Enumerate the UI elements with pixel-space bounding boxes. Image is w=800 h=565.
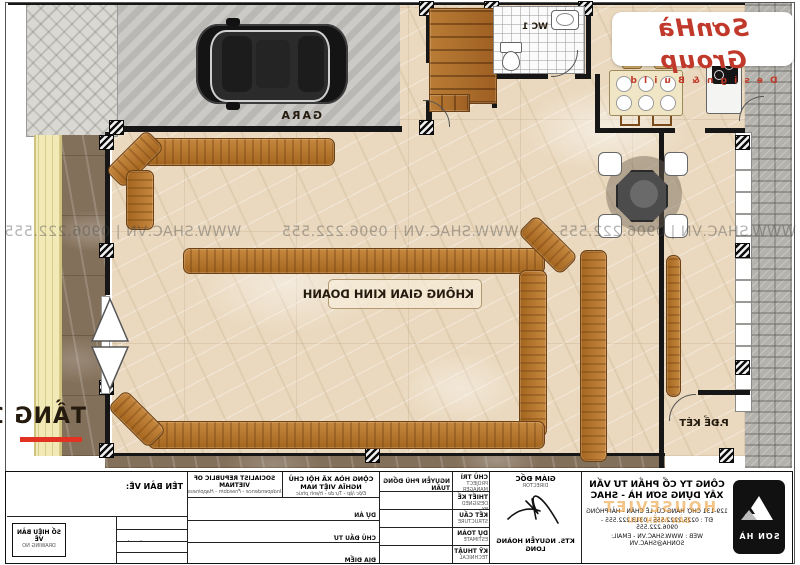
staff-label: KẾT CẤU (454, 512, 488, 519)
column-icon (735, 360, 750, 375)
column-icon (99, 443, 114, 458)
garage-interior-wall (112, 126, 402, 132)
column-icon (735, 243, 750, 258)
staff-label: DỰ TOÁN (454, 530, 488, 537)
project-cell: CỘNG HÒA XÃ HỘI CHỦ NGHĨA VIỆT NAM Độc l… (188, 472, 380, 563)
free-site-watermark-1: HOUSEVIET (584, 498, 734, 516)
staff-row-label: THIẾT KẾ DESIGNED BY (453, 491, 489, 509)
column-icon (99, 243, 114, 258)
republic-vn-1: CỘNG HÒA XÃ HỘI CHỦ NGHĨA VIỆT NAM (283, 475, 379, 491)
project-label: DỰ ÁN (354, 512, 376, 519)
drawing-cell: TÊN BẢN VẼ: HẠNG MỤC GIAI ĐOẠN THIẾT KẾ … (8, 472, 188, 563)
staff-label: THIẾT KẾ (454, 494, 488, 501)
display-counter-top (143, 138, 335, 166)
column-icon (735, 135, 750, 150)
director-title: GIÁM ĐỐC (490, 475, 581, 483)
republic-vn-2: Độc lập - Tự do - Hạnh phúc (283, 491, 379, 497)
dining-chair-icon (620, 116, 640, 126)
display-counter-middle (183, 248, 545, 274)
staff-value (379, 527, 452, 545)
wc-toilet-bowl-icon (502, 51, 520, 71)
title-block: SƠN HÀ CÔNG TY CỔ PHẦN TƯ VẤN XÂY DỰNG S… (5, 471, 793, 564)
wall-cabinet (666, 255, 681, 397)
drawing-number-box: SỐ HIỆU BẢN VẼ DRAWING NO (12, 523, 66, 557)
sidewalk-paving (26, 3, 118, 137)
watermark-row: WWW.SHAC.VN | 0906.222.555 WWW.SHAC.VN |… (0, 224, 800, 240)
car-roof-panel (256, 40, 290, 88)
drawing-rows: HẠNG MỤC GIAI ĐOẠN THIẾT KẾ TỶ LỆ NGÀY H… (117, 516, 187, 563)
brand-logo-card: SơnHà Group D e s i g n & B u i l d (612, 12, 794, 66)
company-name-1: CÔNG TY CỔ PHẦN TƯ VẤN (584, 480, 730, 491)
wc-sink-basin-icon (556, 13, 574, 26)
stair-lower-flight (429, 8, 497, 104)
drawing-name-label: TÊN BẢN VẼ: (126, 482, 183, 491)
floor-title-underline (20, 437, 82, 442)
car-icon (196, 24, 348, 104)
republic-en: SOCIALIST REPUBLIC OF VIETNAM Independen… (187, 472, 283, 498)
car-rear-window (298, 36, 324, 92)
facade-wall-a (105, 132, 110, 295)
car-mirror-icon (226, 18, 240, 26)
sonha-logo-text: SƠN HÀ (733, 532, 785, 541)
wc-front-wall-b (492, 74, 548, 79)
floor-plan-sheet: WC 1 (0, 0, 800, 565)
project-row: CHỦ ĐẦU TƯOWNER (187, 520, 379, 542)
floor-title: TẦNG 1 (0, 404, 86, 429)
staff-label: KỸ THUẬT (454, 548, 488, 555)
project-row: DỰ ÁNPROJECT (187, 498, 379, 520)
column-icon (99, 135, 114, 150)
staff-value: NGUYỄN PHÙ ĐỔNG TUẤN (379, 472, 452, 491)
watermark-text: WWW.SHAC.VN | 0906.222.555 (4, 224, 241, 240)
republic-vn: CỘNG HÒA XÃ HỘI CHỦ NGHĨA VIỆT NAM Độc l… (283, 472, 379, 498)
wc-label: WC 1 (522, 22, 548, 32)
business-space-label: KHÔNG GIAN KINH DOANH (303, 287, 474, 301)
free-site-watermark-2: BẢN MIỄN PHÍ (584, 516, 734, 525)
republic-en-1: SOCIALIST REPUBLIC OF VIETNAM (187, 475, 282, 489)
wc-front-wall-a (575, 74, 587, 79)
top-wall (8, 3, 745, 5)
staff-values: NGUYỄN PHÙ ĐỔNG TUẤN (379, 472, 453, 563)
staff-sub: STRUCTURE (454, 519, 488, 525)
staff-sub: PROJECT MANAGER (454, 481, 488, 491)
staff-label: CHỦ TRÌ (454, 474, 488, 481)
column-icon (719, 448, 734, 463)
car-windshield (222, 36, 252, 92)
staff-sub: DESIGNED BY (454, 501, 488, 509)
garage-label: GARA (279, 109, 322, 122)
project-row: ĐỊA ĐIỂMLOCATION (187, 542, 379, 563)
watermark-text: WWW.SHAC.VN | 0906.222.555 (281, 224, 518, 240)
staff-value (379, 509, 452, 527)
republic-en-2: Independence - Freedom - Happiness (187, 489, 282, 495)
column-icon (109, 120, 124, 135)
display-counter-bottom (148, 421, 545, 449)
dining-wall-a (705, 128, 745, 133)
tea-table-top (630, 180, 658, 208)
drawing-number-cell: SỐ HIỆU BẢN VẼ DRAWING NO (7, 516, 117, 563)
safe-room-label: P.ĐỂ KÉT (666, 418, 742, 429)
brand-logo-text: SơnHà Group (612, 12, 794, 76)
staff-row-label: KỸ THUẬT TECHNICAL (453, 545, 489, 563)
project-label: CHỦ ĐẦU TƯ (334, 535, 376, 542)
mountain-logo-icon (739, 488, 779, 528)
director-name: KTS. NGUYỄN HOÀNG LONG (490, 537, 581, 553)
entrance-folding-door-icon (88, 296, 136, 392)
staff-value (379, 545, 452, 563)
display-counter-vertical (519, 270, 547, 437)
director-cell: GIÁM ĐỐC DIRECTOR KTS. NGUYỄN HOÀNG LONG (490, 472, 582, 563)
safe-room-wall (698, 390, 750, 395)
drawing-number-label: SỐ HIỆU BẢN VẼ (13, 529, 65, 543)
staff-value (379, 491, 452, 509)
staff-sub: TECHNICAL (454, 555, 488, 561)
staff-row-label: DỰ TOÁN ESTIMATE (453, 527, 489, 545)
pantry-wall (595, 74, 600, 133)
plate-icon (616, 95, 632, 111)
staff-cell: CHỦ TRÌ PROJECT MANAGER THIẾT KẾ DESIGNE… (380, 472, 490, 563)
company-web: WEB : WWW.SHAC.VN - EMAIL: SONHA@SHAC.VN (584, 533, 730, 547)
display-shelf (580, 250, 607, 462)
car-mirror-icon (226, 102, 240, 110)
free-site-watermark: HOUSEVIET BẢN MIỄN PHÍ (584, 498, 734, 525)
drawing-number-sub: DRAWING NO (13, 543, 65, 549)
tea-chair-icon (598, 152, 622, 176)
staff-row-label: CHỦ TRÌ PROJECT MANAGER (453, 472, 489, 491)
signature-icon (501, 489, 571, 533)
dining-chair-icon (652, 116, 672, 126)
watermark-text: WWW.SHAC.VN | 0906.222.555 (559, 224, 796, 240)
display-counter-return (126, 170, 154, 230)
brand-logo-tagline: D e s i g n & B u i l d (612, 76, 794, 86)
staff-sub: ESTIMATE (454, 537, 488, 543)
company-cell: SƠN HÀ CÔNG TY CỔ PHẦN TƯ VẤN XÂY DỰNG S… (582, 472, 792, 563)
sonha-logo: SƠN HÀ (733, 480, 785, 554)
plate-icon (660, 95, 676, 111)
tea-chair-icon (664, 152, 688, 176)
plate-icon (638, 95, 654, 111)
project-label: ĐỊA ĐIỂM (345, 557, 376, 563)
staff-row-label: KẾT CẤU STRUCTURE (453, 509, 489, 527)
column-icon (365, 448, 380, 463)
